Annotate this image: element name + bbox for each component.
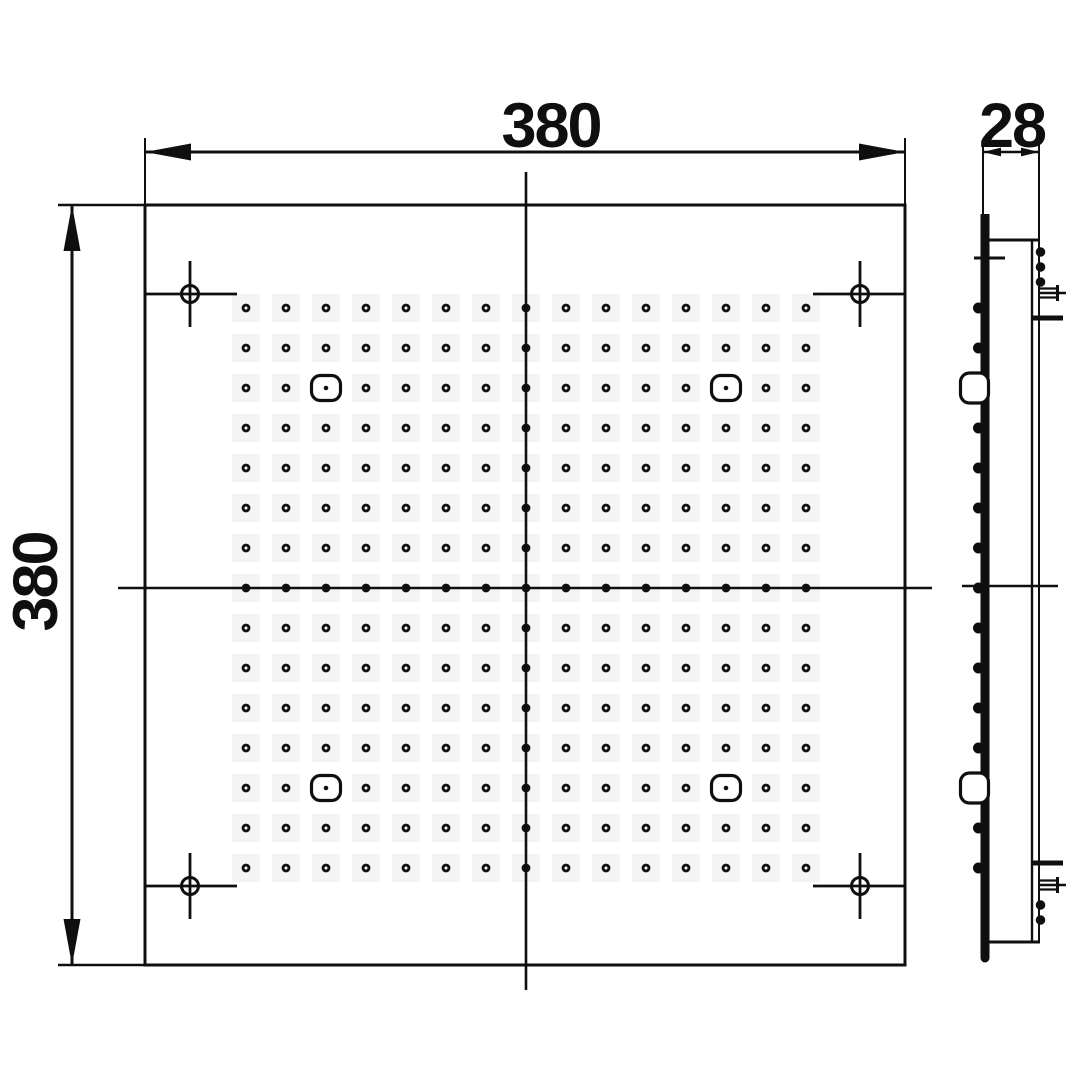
nozzle-dot-hole — [805, 787, 808, 790]
nozzle-dot-hole — [685, 347, 688, 350]
nozzle-dot-hole — [365, 627, 368, 630]
nozzle-dot-hole — [565, 667, 568, 670]
nozzle-dot-hole — [445, 667, 448, 670]
nozzle-dot — [522, 504, 531, 513]
nozzle-dot-hole — [285, 387, 288, 390]
nozzle-dot-hole — [245, 507, 248, 510]
nozzle-dot-hole — [485, 667, 488, 670]
nozzle-dot-hole — [405, 787, 408, 790]
nozzle-dot-hole — [765, 747, 768, 750]
nozzle-dot-hole — [285, 787, 288, 790]
nozzle-dot-hole — [805, 867, 808, 870]
nozzle-dot-hole — [725, 307, 728, 310]
nozzle-dot-hole — [605, 467, 608, 470]
nozzle-dot-hole — [245, 747, 248, 750]
nozzle-dot-hole — [405, 347, 408, 350]
nozzle-dot-hole — [765, 867, 768, 870]
nozzle-dot-hole — [485, 827, 488, 830]
nozzle-dot-hole — [645, 867, 648, 870]
nozzle-dot-hole — [805, 747, 808, 750]
nozzle-dot-hole — [365, 467, 368, 470]
nozzle-dot-hole — [285, 507, 288, 510]
nozzle-dot-hole — [445, 787, 448, 790]
width-dimension-label: 380 — [501, 91, 600, 161]
nozzle-dot-hole — [685, 787, 688, 790]
nozzle-dot-hole — [485, 307, 488, 310]
nozzle-dot-hole — [765, 547, 768, 550]
nozzle-dot-hole — [565, 427, 568, 430]
left-dimension: 380 — [1, 205, 145, 965]
side-fitting-bump — [1036, 263, 1045, 272]
nozzle-dot-hole — [645, 627, 648, 630]
side-led-clip — [961, 373, 989, 403]
nozzle-dot-hole — [285, 827, 288, 830]
nozzle-dot-hole — [405, 427, 408, 430]
nozzle-dot — [642, 584, 651, 593]
arrowhead-left-icon — [145, 144, 191, 161]
nozzle-dot-hole — [605, 547, 608, 550]
led-nozzle-marker — [312, 776, 341, 801]
nozzle-dot-hole — [445, 707, 448, 710]
nozzle-dot-hole — [725, 867, 728, 870]
nozzle-dot-hole — [405, 667, 408, 670]
nozzle-dot-hole — [365, 867, 368, 870]
nozzle-dot-hole — [365, 427, 368, 430]
nozzle-dot — [522, 344, 531, 353]
nozzle-dot-hole — [565, 467, 568, 470]
nozzle-dot-hole — [605, 667, 608, 670]
nozzle-dot-hole — [565, 747, 568, 750]
nozzle-dot-hole — [605, 867, 608, 870]
nozzle-dot-hole — [605, 507, 608, 510]
nozzle-dot-hole — [645, 707, 648, 710]
nozzle-dot-hole — [565, 347, 568, 350]
nozzle-dot — [762, 584, 771, 593]
nozzle-dot — [522, 784, 531, 793]
nozzle-dot-hole — [685, 827, 688, 830]
nozzle-dot — [522, 624, 531, 633]
nozzle-dot-hole — [605, 347, 608, 350]
nozzle-dot-hole — [765, 787, 768, 790]
nozzle-dot-hole — [765, 427, 768, 430]
nozzle-dot-hole — [725, 667, 728, 670]
nozzle-dot-hole — [605, 827, 608, 830]
shower-head-drawing: 380 380 28 — [0, 0, 1090, 1090]
nozzle-dot-hole — [325, 467, 328, 470]
nozzle-dot-hole — [485, 467, 488, 470]
nozzle-dot-hole — [685, 387, 688, 390]
nozzle-dot — [522, 304, 531, 313]
side-fitting-bump — [1036, 278, 1045, 287]
nozzle-dot-hole — [805, 387, 808, 390]
nozzle-dot-hole — [565, 307, 568, 310]
nozzle-dot-hole — [285, 707, 288, 710]
nozzle-dot-hole — [685, 427, 688, 430]
nozzle-dot-hole — [245, 827, 248, 830]
nozzle-dot-hole — [485, 427, 488, 430]
front-view — [118, 172, 932, 990]
nozzle-dot-hole — [605, 387, 608, 390]
nozzle-dot-hole — [605, 787, 608, 790]
nozzle-dot — [482, 584, 491, 593]
led-nozzle-marker — [712, 776, 741, 801]
led-nozzle-marker — [312, 376, 341, 401]
nozzle-dot-hole — [325, 667, 328, 670]
nozzle-dot-hole — [485, 627, 488, 630]
nozzle-dot-hole — [645, 827, 648, 830]
nozzle-dot-hole — [245, 627, 248, 630]
nozzle-dot-hole — [365, 667, 368, 670]
nozzle-dot-hole — [365, 507, 368, 510]
nozzle-dot-hole — [805, 627, 808, 630]
nozzle-dot-hole — [725, 707, 728, 710]
nozzle-dot-hole — [245, 707, 248, 710]
nozzle-dot — [522, 424, 531, 433]
side-fitting-bump — [1036, 916, 1045, 925]
nozzle-dot-hole — [765, 467, 768, 470]
nozzle-dot-hole — [605, 627, 608, 630]
nozzle-dot-hole — [445, 427, 448, 430]
nozzle-dot-hole — [445, 387, 448, 390]
side-nozzle-bump — [974, 543, 984, 553]
nozzle-dot-hole — [725, 747, 728, 750]
nozzle-dot-hole — [645, 347, 648, 350]
nozzle-dot — [682, 584, 691, 593]
nozzle-dot-hole — [605, 707, 608, 710]
nozzle-dot-hole — [645, 747, 648, 750]
nozzle-dot-hole — [605, 427, 608, 430]
nozzle-dot-hole — [245, 427, 248, 430]
nozzle-dot — [442, 584, 451, 593]
nozzle-dot-hole — [405, 387, 408, 390]
nozzle-dot-hole — [285, 307, 288, 310]
nozzle-dot-hole — [285, 467, 288, 470]
nozzle-dot-hole — [405, 467, 408, 470]
nozzle-dot-hole — [325, 427, 328, 430]
nozzle-dot-hole — [645, 787, 648, 790]
nozzle-dot-hole — [485, 787, 488, 790]
nozzle-dot-hole — [805, 307, 808, 310]
nozzle-dot-hole — [445, 627, 448, 630]
nozzle-dot — [722, 584, 731, 593]
nozzle-dot-hole — [725, 467, 728, 470]
nozzle-dot — [602, 584, 611, 593]
side-nozzle-bump — [974, 463, 984, 473]
mount-screw-top — [1040, 285, 1066, 301]
side-nozzle-bump — [974, 663, 984, 673]
nozzle-dot — [522, 744, 531, 753]
nozzle-dot-hole — [285, 747, 288, 750]
nozzle-dot-hole — [365, 387, 368, 390]
side-nozzle-bump — [974, 743, 984, 753]
nozzle-dot-hole — [605, 307, 608, 310]
side-led-clip — [961, 773, 989, 803]
led-nozzle-marker — [712, 376, 741, 401]
nozzle-dot-hole — [485, 507, 488, 510]
nozzle-dot — [522, 664, 531, 673]
nozzle-dot-hole — [725, 547, 728, 550]
nozzle-dot-hole — [405, 307, 408, 310]
nozzle-dot-hole — [805, 667, 808, 670]
nozzle-dot-hole — [485, 547, 488, 550]
nozzle-dot-hole — [765, 667, 768, 670]
nozzle-dot-hole — [445, 467, 448, 470]
nozzle-dot-hole — [685, 667, 688, 670]
nozzle-dot-hole — [725, 507, 728, 510]
side-nozzle-bump — [974, 343, 984, 353]
nozzle-dot — [522, 824, 531, 833]
nozzle-dot-hole — [725, 347, 728, 350]
nozzle-dot-hole — [405, 707, 408, 710]
nozzle-dot-hole — [325, 747, 328, 750]
arrowhead-up-icon — [64, 205, 81, 251]
side-nozzle-bump — [974, 863, 984, 873]
nozzle-dot-hole — [325, 347, 328, 350]
nozzle-dot-hole — [245, 387, 248, 390]
nozzle-dot-hole — [285, 427, 288, 430]
nozzle-dot-hole — [685, 707, 688, 710]
depth-dimension-label: 28 — [979, 91, 1046, 161]
nozzle-dot-hole — [685, 307, 688, 310]
side-nozzle-bump — [974, 703, 984, 713]
nozzle-dot-hole — [765, 627, 768, 630]
nozzle-dot-hole — [805, 547, 808, 550]
nozzle-dot-hole — [805, 507, 808, 510]
nozzle-dot-hole — [285, 867, 288, 870]
nozzle-dot-hole — [245, 307, 248, 310]
nozzle-dot-hole — [805, 827, 808, 830]
nozzle-dot-hole — [485, 387, 488, 390]
nozzle-dot-hole — [405, 747, 408, 750]
nozzle-dot-hole — [805, 707, 808, 710]
nozzle-dot-hole — [325, 547, 328, 550]
nozzle-dot-hole — [565, 387, 568, 390]
mount-screw-bottom — [1040, 877, 1066, 893]
nozzle-dot-hole — [445, 347, 448, 350]
side-fitting-bump — [1036, 901, 1045, 910]
nozzle-dot-hole — [405, 547, 408, 550]
nozzle-dot-hole — [645, 427, 648, 430]
nozzle-dot-hole — [325, 867, 328, 870]
nozzle-dot-hole — [365, 547, 368, 550]
nozzle-dot-hole — [765, 387, 768, 390]
nozzle-dot-hole — [285, 347, 288, 350]
nozzle-dot — [522, 464, 531, 473]
nozzle-dot-hole — [645, 467, 648, 470]
arrowhead-down-icon — [64, 919, 81, 965]
nozzle-dot-hole — [445, 507, 448, 510]
nozzle-dot-hole — [765, 507, 768, 510]
nozzle-dot-hole — [365, 347, 368, 350]
nozzle-dot-hole — [645, 547, 648, 550]
nozzle-dot-hole — [685, 547, 688, 550]
side-nozzle-bump — [974, 423, 984, 433]
nozzle-dot-hole — [325, 827, 328, 830]
nozzle-dot-hole — [725, 627, 728, 630]
nozzle-dot-hole — [685, 507, 688, 510]
nozzle-dot-hole — [445, 867, 448, 870]
nozzle-dot-hole — [365, 307, 368, 310]
nozzle-dot-hole — [765, 827, 768, 830]
side-nozzle-bump — [974, 583, 984, 593]
side-nozzle-bump — [974, 503, 984, 513]
nozzle-dot-hole — [685, 867, 688, 870]
nozzle-dot-hole — [485, 707, 488, 710]
nozzle-dot — [522, 864, 531, 873]
nozzle-dot-hole — [645, 387, 648, 390]
nozzle-dot — [522, 544, 531, 553]
nozzle-dot-hole — [765, 347, 768, 350]
nozzle-dot-hole — [645, 667, 648, 670]
side-nozzle-bump — [974, 303, 984, 313]
technical-drawing-page: 380 380 28 — [0, 0, 1090, 1090]
nozzle-dot — [522, 384, 531, 393]
nozzle-dot — [322, 584, 331, 593]
nozzle-dot-hole — [285, 547, 288, 550]
nozzle-dot-hole — [285, 627, 288, 630]
nozzle-dot-hole — [245, 787, 248, 790]
nozzle-dot-hole — [325, 707, 328, 710]
nozzle-dot-hole — [405, 507, 408, 510]
nozzle-dot-hole — [685, 467, 688, 470]
nozzle-dot-hole — [565, 627, 568, 630]
nozzle-dot-hole — [245, 467, 248, 470]
nozzle-dot — [282, 584, 291, 593]
nozzle-dot-hole — [565, 787, 568, 790]
nozzle-dot-hole — [645, 507, 648, 510]
nozzle-dot — [562, 584, 571, 593]
nozzle-dot-hole — [485, 867, 488, 870]
nozzle-dot-hole — [805, 467, 808, 470]
nozzle-dot-hole — [685, 627, 688, 630]
nozzle-dot — [362, 584, 371, 593]
nozzle-dot-hole — [325, 627, 328, 630]
nozzle-dot-hole — [805, 347, 808, 350]
nozzle-dot-hole — [245, 347, 248, 350]
arrowhead-right-icon — [859, 144, 905, 161]
nozzle-dot-hole — [445, 307, 448, 310]
side-fitting-bump — [1036, 248, 1045, 257]
side-view: 28 — [961, 91, 1067, 958]
side-nozzle-bump — [974, 823, 984, 833]
height-dimension-label: 380 — [1, 532, 71, 631]
nozzle-dot-hole — [405, 867, 408, 870]
nozzle-dot-hole — [405, 827, 408, 830]
nozzle-dot-hole — [445, 747, 448, 750]
nozzle-dot — [402, 584, 411, 593]
nozzle-dot-hole — [725, 427, 728, 430]
nozzle-dot-hole — [645, 307, 648, 310]
nozzle-dot — [242, 584, 251, 593]
nozzle-dot-hole — [245, 867, 248, 870]
nozzle-dot-hole — [485, 747, 488, 750]
nozzle-dot-hole — [325, 507, 328, 510]
nozzle-dot-hole — [245, 667, 248, 670]
nozzle-dot-hole — [405, 627, 408, 630]
nozzle-dot-hole — [565, 867, 568, 870]
nozzle-dot-hole — [325, 307, 328, 310]
nozzle-dot-hole — [245, 547, 248, 550]
nozzle-dot — [522, 704, 531, 713]
nozzle-dot-hole — [565, 507, 568, 510]
nozzle-dot-hole — [765, 307, 768, 310]
nozzle-dot-hole — [805, 427, 808, 430]
nozzle-dot-hole — [685, 747, 688, 750]
side-nozzle-bump — [974, 623, 984, 633]
nozzle-dot-hole — [365, 787, 368, 790]
nozzle-dot-hole — [605, 747, 608, 750]
nozzle-dot-hole — [445, 827, 448, 830]
nozzle-dot-hole — [365, 827, 368, 830]
nozzle-dot-hole — [565, 827, 568, 830]
depth-dimension: 28 — [979, 91, 1046, 161]
nozzle-dot — [522, 584, 531, 593]
nozzle-dot-hole — [565, 547, 568, 550]
nozzle-dot-hole — [365, 707, 368, 710]
nozzle-dot-hole — [565, 707, 568, 710]
nozzle-dot-hole — [765, 707, 768, 710]
nozzle-dot-hole — [485, 347, 488, 350]
nozzle-dot-hole — [725, 827, 728, 830]
nozzle-dot-hole — [445, 547, 448, 550]
nozzle-dot-hole — [285, 667, 288, 670]
nozzle-dot — [802, 584, 811, 593]
nozzle-dot-hole — [365, 747, 368, 750]
